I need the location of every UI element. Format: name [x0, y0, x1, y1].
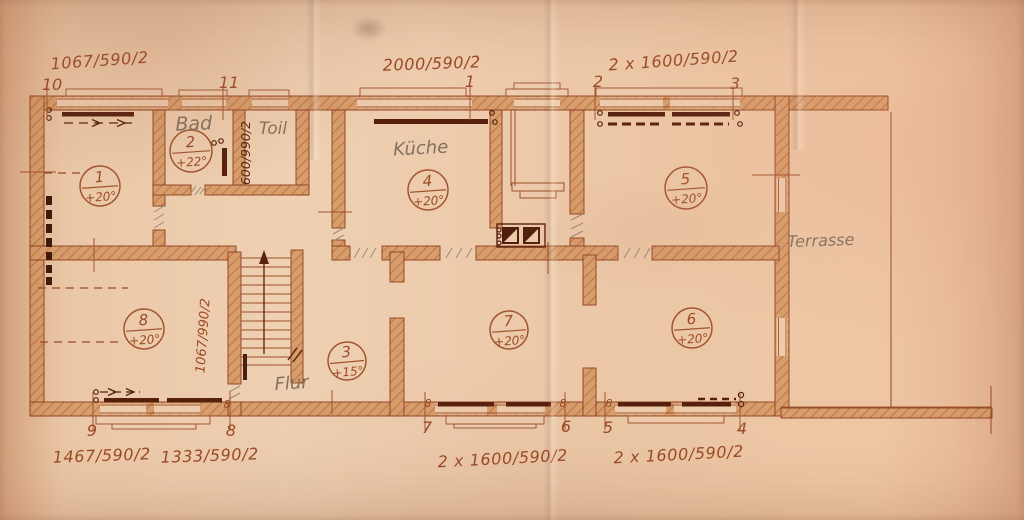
room-number: 1 [94, 168, 105, 187]
wall-bad-bottom-a [153, 185, 191, 195]
dimension-top-right: 2 x 1600/590/2 [608, 46, 739, 74]
room-temperature: +22° [176, 154, 208, 170]
marker-bottom-8: 8 [226, 421, 236, 440]
floor-plan-drawing: 1 +20° 2 +22° 3 +15° 4 +20° 5 +20° [0, 0, 1024, 520]
room-temperature: +20° [671, 191, 703, 207]
radiator-room8-a [104, 398, 159, 403]
stair-rail-mark [243, 354, 247, 380]
wall-bold-dashes [46, 196, 52, 285]
wall-middle-c [476, 246, 618, 260]
room-number: 6 [686, 310, 697, 329]
room-temperature: +20° [129, 332, 161, 348]
chimney-icon [497, 224, 545, 247]
dimension-bottom-right: 2 x 1600/590/2 [613, 442, 744, 468]
room-number: 8 [138, 311, 149, 330]
radiator-room5-b [672, 112, 730, 117]
dimension-bottom-left2: 1333/590/2 [160, 444, 259, 466]
label-toil: Toil [259, 119, 287, 139]
label-terrasse: Terrasse [787, 230, 855, 251]
wall-toil-right [296, 110, 309, 195]
room-badge-8: 8 +20° [123, 308, 166, 351]
room-badge-1: 1 +20° [79, 165, 122, 208]
wall-kueche-left-a [332, 110, 345, 228]
room-number: 2 [185, 133, 196, 152]
room-number: 4 [422, 172, 433, 191]
wall-stairs-right [291, 250, 303, 383]
wall-room7-room6-a [583, 255, 596, 305]
room-temperature: +15° [332, 364, 364, 381]
room-badge-5: 5 +20° [664, 166, 709, 211]
dimension-stairs-vertical: 1067/990/2 [193, 298, 213, 374]
room-badge-4: 4 +20° [407, 169, 450, 212]
radiator-tag-8: 8 [425, 397, 432, 410]
radiator-room6-b [682, 402, 731, 407]
wall-middle-a [332, 246, 350, 260]
marker-bottom-9: 9 [87, 421, 97, 440]
wall-flur-room7-a [390, 252, 404, 282]
marker-top-3: 3 [730, 74, 740, 93]
radiator-kueche [374, 119, 488, 124]
dimension-toilet-vertical: 600/990/2 [238, 121, 253, 185]
label-flur: Flur [274, 372, 311, 395]
room-badge-7: 7 +20° [489, 310, 530, 351]
room-temperature: +20° [494, 333, 526, 349]
wall-flur-room7-b [390, 318, 404, 416]
room-temperature: +20° [85, 189, 117, 205]
wall-stairs-left-a [228, 252, 241, 384]
radiator-room7-a [438, 402, 494, 407]
label-kueche: Küche [393, 137, 449, 161]
radiator-room5-a [608, 112, 665, 117]
radiator-room7-b [506, 402, 551, 407]
room-badge-6: 6 +20° [671, 307, 714, 350]
wall-room5-left-a [570, 110, 584, 214]
marker-bottom-7: 7 [422, 418, 433, 437]
radiator-tag-8: 8 [560, 397, 567, 410]
room-number: 7 [503, 312, 514, 331]
wall-kueche-right [490, 110, 502, 228]
terrace-outline [781, 112, 992, 434]
radiator-tag-8: 8 [606, 397, 613, 410]
dimension-bottom-left: 1467/590/2 [52, 444, 151, 466]
label-bad: Bad [175, 112, 213, 135]
radiator-room6-a [618, 402, 671, 407]
room-number: 3 [341, 343, 352, 362]
marker-top-2: 2 [593, 72, 603, 91]
radiator-room1 [62, 112, 134, 117]
room-temperature: +20° [677, 331, 709, 347]
room-number: 5 [680, 170, 691, 189]
dimension-bottom-center: 2 x 1600/590/2 [437, 446, 568, 472]
floor-plan-sheet: 1 +20° 2 +22° 3 +15° 4 +20° 5 +20° [0, 0, 1024, 520]
marker-bottom-4: 4 [737, 419, 747, 438]
marker-top-10: 10 [42, 75, 62, 94]
radiator-tag-8: 8 [224, 398, 231, 411]
entry-hall [511, 110, 564, 198]
stair-up-arrow-icon [259, 250, 269, 264]
room-badge-3: 3 +15° [326, 340, 367, 381]
wall-middle-west [30, 246, 236, 260]
terrace-bottom-band [781, 408, 992, 418]
wall-room7-room6-b [583, 368, 596, 416]
room-temperature: +20° [413, 193, 445, 209]
wall-middle-d [652, 246, 779, 260]
wall-bad-bottom-b [205, 185, 309, 195]
marker-bottom-5: 5 [603, 418, 613, 437]
marker-bottom-6: 6 [561, 417, 571, 436]
radiator-bad [222, 148, 227, 176]
marker-top-11: 11 [219, 73, 239, 92]
radiator-room8-b [167, 398, 222, 403]
marker-top-1: 1 [465, 72, 475, 91]
dimension-top-left: 1067/590/2 [50, 48, 149, 74]
